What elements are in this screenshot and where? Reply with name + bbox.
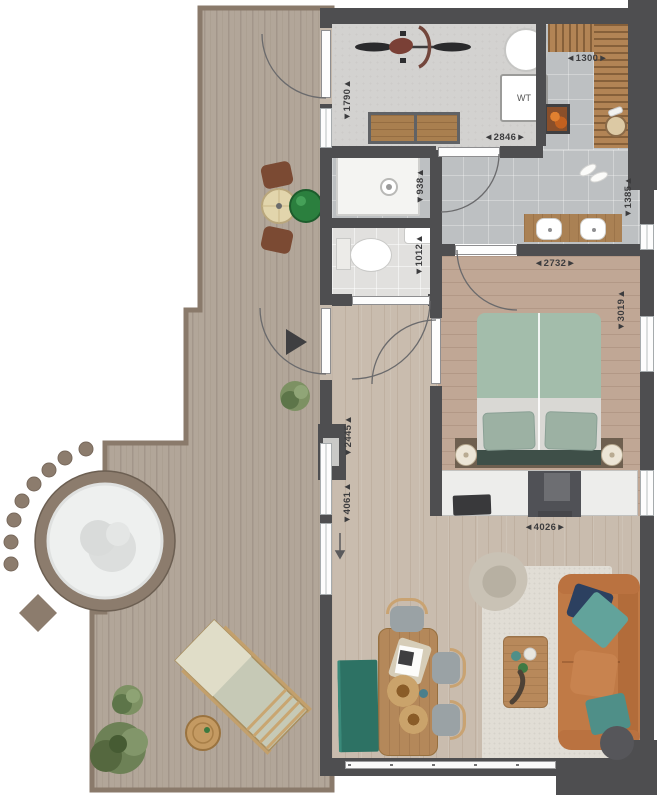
dimension-label-1385: ▼1385▲ bbox=[622, 173, 634, 221]
coffee-table-decor bbox=[511, 648, 536, 702]
entrance-arrow-marker bbox=[286, 329, 307, 355]
dimension-label-1790: ▼1790▲ bbox=[341, 76, 353, 124]
dimension-label-4061: ▼4061▲ bbox=[341, 479, 353, 527]
dimension-label-1300: ◄1300► bbox=[563, 52, 611, 64]
dimension-label-3019: ▼3019▲ bbox=[615, 286, 627, 334]
dimension-label-938: ▼938▲ bbox=[414, 162, 426, 210]
door-swing-arcs bbox=[260, 34, 517, 384]
slippers bbox=[578, 162, 609, 184]
dimension-label-1012: ▼1012▲ bbox=[413, 231, 425, 279]
bicycle bbox=[355, 27, 471, 67]
annotation-layer bbox=[0, 0, 657, 800]
dimension-label-4026: ◄4026► bbox=[521, 521, 569, 533]
floor-plan: WT bbox=[0, 0, 657, 800]
dimension-label-2846: ◄2846► bbox=[481, 131, 529, 143]
dimension-label-2445: ▼2445▲ bbox=[342, 412, 354, 460]
window-slide-arrow bbox=[336, 533, 344, 558]
dimension-label-2732: ◄2732► bbox=[531, 257, 579, 269]
